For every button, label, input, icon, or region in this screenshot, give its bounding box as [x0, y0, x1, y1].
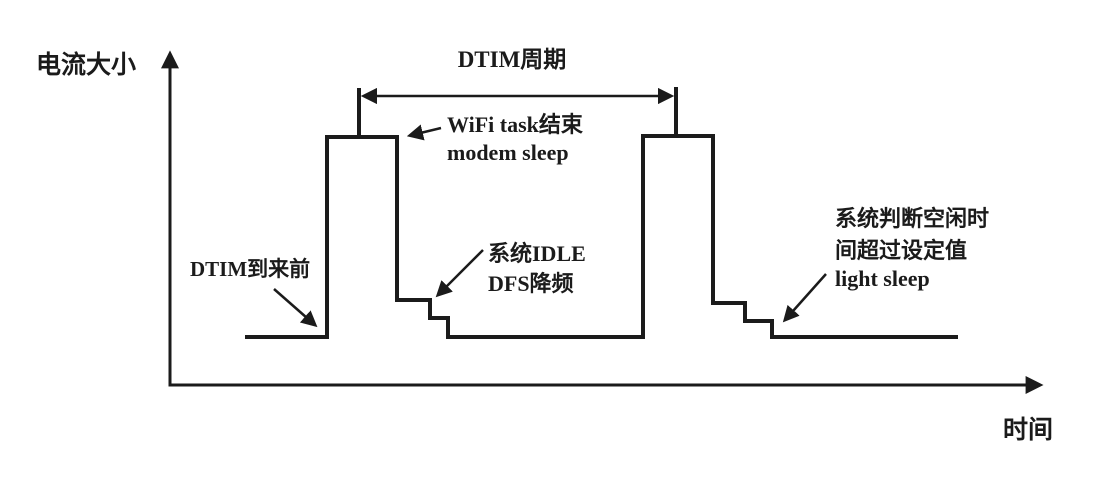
- light-sleep-arrow-icon: [785, 274, 826, 320]
- current-waveform-trace: [245, 136, 958, 337]
- dtim-before-arrow-icon: [274, 289, 315, 325]
- dtim-before-label: DTIM到来前: [190, 257, 310, 281]
- idle-dfs-arrow-icon: [438, 250, 483, 295]
- idle-dfs-label-line2: DFS降频: [488, 271, 574, 296]
- light-sleep-label-line3: light sleep: [835, 266, 930, 291]
- light-sleep-label-line2: 间超过设定值: [835, 238, 967, 263]
- current-vs-time-diagram: 电流大小 时间 DTIM周期 WiFi task结束 modem sleep D…: [0, 0, 1107, 492]
- dtim-period-label: DTIM周期: [458, 47, 567, 72]
- wifi-task-label-line2: modem sleep: [447, 140, 569, 165]
- x-axis-label: 时间: [1003, 416, 1053, 444]
- idle-dfs-label-line1: 系统IDLE: [488, 241, 586, 266]
- diagram-canvas: 电流大小 时间 DTIM周期 WiFi task结束 modem sleep D…: [0, 0, 1107, 492]
- y-axis-label: 电流大小: [36, 51, 136, 79]
- light-sleep-label-line1: 系统判断空闲时: [835, 206, 989, 231]
- wifi-task-label-line1: WiFi task结束: [447, 112, 584, 137]
- wifi-task-arrow-icon: [410, 128, 441, 136]
